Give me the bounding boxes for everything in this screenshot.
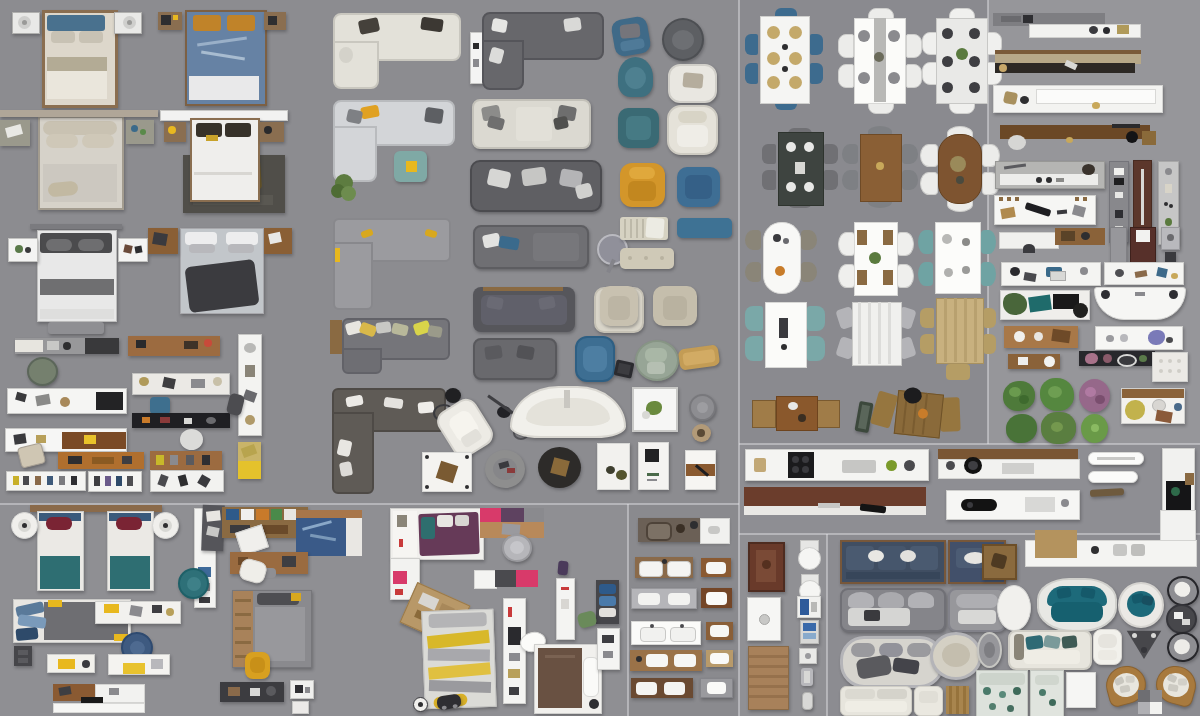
headboard-shelf-gray[interactable] [0, 110, 158, 117]
sofa-gray-teal-pillow-part-1 [482, 232, 501, 248]
art-frame-plant[interactable] [632, 387, 678, 432]
single-bed-teal-1[interactable] [37, 511, 84, 591]
console-wood-white[interactable] [997, 228, 1105, 253]
armchair-mustard[interactable] [620, 163, 665, 207]
nightstand-gray-right[interactable] [126, 120, 154, 144]
grab-handle[interactable] [802, 692, 813, 710]
armchair-mustard-part-2 [628, 181, 656, 201]
console-white-clips[interactable] [1001, 262, 1101, 286]
rug-marble-dots[interactable] [597, 443, 630, 490]
armchair-tufted-1-part-1 [608, 296, 630, 320]
armchair-blue-square[interactable] [677, 167, 720, 207]
nightstand-speaker-left[interactable] [12, 12, 40, 34]
tray-round-tan[interactable] [692, 424, 711, 442]
tall-shelf-white[interactable] [238, 334, 262, 436]
tray-round-tan-part-1 [697, 429, 705, 437]
tv-console-wood-top-part-3 [946, 461, 955, 470]
nightstand-speaker-left-part-1 [18, 16, 31, 29]
bed-purple-wardrobe-part-3 [399, 539, 403, 547]
kitchen-counter-brown[interactable] [744, 487, 926, 515]
double-bed-blue-pillows[interactable] [42, 10, 118, 108]
color-swatch-triple[interactable] [474, 570, 538, 587]
swatch-grid-gray-part-3 [1138, 702, 1150, 714]
nightstand-walnut-left[interactable] [148, 228, 178, 254]
kitchen-counter-stove[interactable] [745, 449, 929, 481]
console-white-curved[interactable] [1094, 287, 1186, 320]
dining-set-placemats-part-5 [854, 222, 898, 296]
shoe-rack-1-part-6 [71, 476, 77, 485]
bench-striped-blanket-part-1 [624, 219, 626, 238]
console-white-clips-part-5 [1080, 267, 1088, 275]
rug-round-spiral-1[interactable] [11, 512, 38, 539]
vanity-granite-double[interactable] [638, 518, 728, 542]
desk-pink-purple[interactable] [480, 508, 544, 538]
wardrobe-tall-narrow-part-2 [561, 599, 569, 609]
chair-round-sage[interactable] [635, 340, 679, 381]
sofa-gray-single-part-2 [958, 610, 996, 624]
shoe-rack-2-part-4 [127, 476, 133, 486]
armchair-rattan-white[interactable] [667, 105, 718, 155]
nightstand-dark-knobs[interactable] [14, 646, 32, 666]
tv-console-wood-top-part-1 [938, 449, 1078, 460]
tv-console-soundbar-part-2 [967, 502, 973, 508]
sectional-sofa-darkgray[interactable] [482, 12, 600, 86]
double-bed-blue-duvet[interactable] [185, 10, 267, 106]
dresser-striped[interactable] [132, 373, 230, 395]
desk-white-wood-part-1 [62, 432, 126, 449]
console-white-curved-part-1 [1101, 290, 1110, 299]
nightstand-wood-b[interactable] [260, 122, 284, 142]
plant-shrub-1[interactable] [1003, 381, 1035, 411]
desk-blue-sketch-part-5 [346, 518, 362, 556]
panel-wood-slats[interactable] [946, 686, 969, 714]
media-bench-brown-part-6 [109, 688, 119, 695]
sofa-navy-wood-frame-part-5 [900, 550, 916, 562]
sofa-floral-pattern-1-part-5 [989, 703, 996, 710]
sideboard-two-tone[interactable] [15, 338, 119, 354]
vanity-double-wood-dark[interactable] [630, 650, 702, 671]
swatch-grid-gray[interactable] [1138, 690, 1162, 714]
sofa-gray-white-seat[interactable] [840, 588, 946, 632]
double-bed-striped-duvet-part-3 [78, 239, 104, 251]
ottoman-tufted-beige[interactable] [620, 248, 674, 269]
double-bed-beige-pillows[interactable] [38, 116, 124, 210]
shower-head-unit[interactable] [799, 648, 817, 664]
dining-set-teal-chairs-part-8 [944, 268, 953, 277]
armchair-tufted-2[interactable] [653, 286, 697, 326]
sectional-sofa-cream[interactable] [333, 13, 457, 85]
coffee-table-wood-square[interactable] [982, 544, 1017, 580]
cabinet-mahogany-small[interactable] [1130, 227, 1156, 265]
bed-chevron-pattern[interactable] [421, 609, 496, 709]
double-bed-blue-pillows-part-2 [51, 31, 75, 43]
ac-unit-short[interactable] [1088, 471, 1138, 483]
bed-end-bench[interactable] [48, 322, 104, 334]
pouf-blue-square[interactable] [150, 397, 170, 414]
nightstand-dark-left[interactable] [158, 12, 182, 30]
double-bed-dark-pillows[interactable] [190, 118, 260, 202]
armchair-tufted-1[interactable] [600, 286, 638, 326]
chair-black-frame-1-part-1 [1173, 580, 1192, 598]
rug-oval-white[interactable] [997, 585, 1031, 631]
bed-purple-wardrobe[interactable] [390, 508, 484, 560]
color-swatch-triple-part-1 [474, 570, 497, 589]
dining-set-teal-wide-part-2 [745, 336, 763, 361]
kitchen-counter-stove-part-4 [802, 456, 809, 463]
vanity-single-wood-part-1 [706, 562, 726, 574]
console-walnut-gray[interactable] [994, 123, 1162, 150]
sofa-chaise-pillows-part-4 [345, 320, 364, 336]
chair-round-sage-part-2 [647, 362, 665, 374]
rug-round-black-chess[interactable] [538, 447, 581, 488]
chair-teal-round-big[interactable] [1118, 582, 1164, 628]
sofa-chesterfield-wood-trim[interactable] [473, 287, 575, 332]
chair-yellow-desk[interactable] [245, 652, 270, 679]
wall-shelf-light-part-2 [1165, 184, 1172, 193]
console-white-dots[interactable] [1104, 262, 1184, 285]
fan-chair-wood-1-part-1 [1110, 670, 1141, 700]
dining-set-teal-chairs-part-1 [918, 230, 933, 254]
shoe-rack-1-part-3 [35, 476, 41, 485]
vanity-single-beige[interactable] [706, 650, 733, 667]
cart-towels-blue-part-2 [803, 633, 816, 639]
armchair-cream-pillow-part-1 [682, 72, 703, 89]
nightstand-walnut-right[interactable] [264, 228, 292, 254]
shoe-bench-brown-part-2 [170, 455, 178, 465]
dining-set-gray-white[interactable] [922, 8, 1000, 112]
sofa-chaise-pillows-part-2 [342, 318, 450, 360]
art-frame-plant-part-2 [642, 411, 650, 419]
swatch-grid-gray-part-4 [1150, 702, 1162, 714]
vanity-single-gray[interactable] [700, 678, 733, 698]
vanity-double-wood[interactable] [635, 557, 693, 578]
sofa-metal-frame-oval[interactable] [840, 636, 944, 688]
sofa-chesterfield-gray[interactable] [470, 160, 602, 212]
shoe-rack-3[interactable] [150, 470, 224, 492]
bench-striped-blanket-part-3 [636, 219, 638, 238]
sofa-cream-gray-pillows[interactable] [472, 99, 591, 149]
dining-set-white-6-part-5 [906, 34, 922, 58]
shelf-pillows-blue-part-1 [599, 584, 616, 594]
double-bed-charcoal-throw-part-1 [185, 232, 217, 245]
bench-striped-blanket[interactable] [620, 217, 668, 240]
tv-console-wood-top[interactable] [938, 449, 1078, 477]
armchair-white-tall[interactable] [1093, 629, 1122, 665]
desk-orange-part-1 [68, 456, 82, 464]
rug-round-spiral-2[interactable] [152, 512, 179, 539]
media-bench-brown[interactable] [53, 684, 143, 711]
potted-plant[interactable] [331, 174, 356, 203]
kitchen-island-L[interactable] [1025, 510, 1195, 565]
shoe-rack-1-part-4 [47, 476, 53, 485]
dresser-striped-part-1 [139, 377, 149, 386]
desk-yellow-wide[interactable] [108, 654, 170, 675]
person-figure-small[interactable] [557, 561, 568, 576]
single-bed-teal-2[interactable] [107, 511, 154, 591]
console-walnut-gray-part-1 [1000, 125, 1150, 139]
towel-stand-small[interactable] [801, 668, 813, 686]
sideboard-white-black-part-1 [96, 392, 123, 410]
dining-set-white-6[interactable] [838, 8, 920, 112]
vanity-double-wood-dark-part-2 [674, 654, 696, 667]
rug-white-blank[interactable] [1066, 672, 1096, 708]
coffee-table-wood-square-part-1 [990, 552, 1007, 569]
shower-deck-wood[interactable] [748, 646, 789, 710]
nightstand-speaker-right-part-2 [127, 20, 132, 25]
armchair-cream-pillow[interactable] [668, 64, 717, 103]
table-rustic-benches[interactable] [872, 384, 963, 443]
bed-plank-side[interactable] [232, 590, 312, 668]
sofa-floral-pattern-2[interactable] [1030, 670, 1064, 716]
headboard-tufted-white[interactable] [1152, 352, 1188, 382]
dresser-striped-part-2 [162, 377, 176, 389]
dining-set-slat-wood[interactable] [920, 298, 996, 380]
tv-console-gray-white[interactable] [993, 13, 1139, 36]
plant-shrub-3[interactable] [1006, 414, 1037, 443]
rug-chessboard-white[interactable] [422, 452, 472, 492]
vanity-double-gray[interactable] [631, 588, 697, 609]
armchair-rattan-white-part-2 [677, 125, 708, 147]
dining-set-oval-wood[interactable] [920, 126, 998, 210]
console-white-dots-part-1 [1115, 269, 1124, 277]
double-bed-charcoal-throw[interactable] [180, 228, 264, 314]
stool-round-gray[interactable] [689, 394, 716, 421]
sectional-sofa-cream-part-4 [420, 17, 444, 33]
double-bed-charcoal-throw-part-3 [189, 244, 215, 253]
shoe-rack-1-part-2 [23, 476, 29, 485]
console-gray-ledge-part-4 [1036, 177, 1042, 183]
plant-shrub-4[interactable] [1041, 412, 1076, 444]
desk-yellow-small[interactable] [47, 654, 95, 673]
sideboard-two-tone-part-3 [47, 341, 59, 350]
chair-swivel-gray[interactable] [662, 18, 704, 61]
sectional-sofa-lightgray[interactable] [333, 100, 451, 178]
box-gray-small[interactable] [1161, 227, 1180, 250]
sofa-serpentine-white-part-2 [564, 390, 570, 408]
sofa-navy-wood-frame-part-1 [846, 546, 874, 570]
rug-round-white-small[interactable] [180, 429, 203, 450]
dining-set-oval-white[interactable] [745, 222, 817, 292]
sofa-cream-teal-pillows[interactable] [1008, 630, 1092, 670]
sideboard-white-black[interactable] [7, 388, 127, 414]
desk-orange-part-2 [92, 457, 114, 464]
plant-flower-purple[interactable] [1079, 379, 1110, 412]
chair-teal-round-small[interactable] [178, 568, 209, 599]
plant-shrub-4-part-1 [1051, 422, 1063, 432]
frame-small-2[interactable] [292, 701, 309, 714]
desk-vanity-flowers[interactable] [1121, 388, 1185, 424]
vanity-double-espresso[interactable] [631, 678, 693, 698]
rug-round-gray[interactable] [485, 450, 525, 488]
desk-wood-angled-part-1 [418, 592, 439, 610]
sofa-teal-curved[interactable] [1037, 578, 1117, 632]
sofa-chaise-pillows[interactable] [330, 318, 446, 370]
nightstand-dark-left-part-2 [173, 15, 178, 20]
sofa-chesterfield-wood-trim-part-1 [483, 287, 563, 291]
double-bed-blue-duvet-part-2 [227, 15, 255, 31]
armchair-teal-curved[interactable] [618, 57, 653, 97]
desk-orange[interactable] [58, 452, 144, 469]
dining-set-blue-chairs[interactable] [745, 8, 823, 110]
armchair-teal-square[interactable] [618, 108, 659, 148]
vanity-double-white[interactable] [631, 621, 701, 645]
console-walnut-gray-part-5 [1142, 131, 1156, 145]
sofa-floral-pattern-1[interactable] [976, 670, 1028, 716]
nightstand-gray-left[interactable] [0, 120, 30, 146]
dining-set-placemats-part-4 [897, 264, 914, 288]
shoe-rack-2[interactable] [88, 471, 142, 492]
shelf-wood-tray[interactable] [1004, 326, 1078, 348]
plant-shrub-5[interactable] [1081, 414, 1108, 443]
pouf-teal[interactable] [394, 151, 427, 182]
double-bed-striped-duvet[interactable] [37, 230, 117, 322]
ottoman-round-green[interactable] [27, 357, 58, 386]
dining-set-gray-white-part-7 [936, 18, 988, 104]
armchair-blue-accent[interactable] [610, 15, 652, 58]
console-white-shelf[interactable] [993, 85, 1163, 113]
plant-flower-purple-part-2 [1095, 395, 1105, 404]
desk-blue-sketch-part-4 [310, 534, 336, 541]
desk-charcoal[interactable] [220, 682, 284, 702]
media-console-black[interactable] [132, 413, 230, 428]
nightstand-wood-a[interactable] [164, 122, 186, 142]
console-white-rail[interactable] [994, 195, 1096, 225]
rug-round-spiral-1-part-1 [18, 519, 31, 532]
kitchen-counter-brown-part-2 [744, 506, 926, 515]
nightstand-white-left[interactable] [8, 238, 38, 262]
vanity-granite-double-part-5 [708, 526, 720, 534]
dining-set-oval-white-part-6 [773, 234, 781, 242]
sofa-gray-loveseat[interactable] [473, 338, 557, 380]
frame-small-1[interactable] [290, 680, 314, 699]
console-art-moss[interactable] [1000, 290, 1090, 320]
cabinet-yellow[interactable] [238, 442, 261, 479]
shoe-rack-1[interactable] [6, 471, 86, 491]
cabinet-yellow-part-2 [241, 444, 258, 458]
desk-white-wood-part-2 [13, 433, 26, 445]
desk-yellow-small-part-1 [58, 659, 75, 669]
chair-outdoor-cream[interactable] [914, 686, 943, 716]
bed-horizontal-gray-part-5 [48, 600, 62, 607]
sideboard-wood[interactable] [128, 336, 220, 356]
dining-set-placemats[interactable] [838, 222, 912, 294]
cart-towels-blue[interactable] [800, 620, 819, 644]
plant-shrub-2[interactable] [1040, 378, 1074, 411]
floating-shelf-wood[interactable] [1008, 354, 1060, 369]
nightstand-white-left-part-2 [25, 247, 31, 253]
dining-set-striped-table-part-1 [835, 306, 856, 330]
rug-brown-band[interactable] [685, 450, 716, 490]
dining-set-oval-wood-part-8 [950, 156, 966, 172]
basket-lattice-oval[interactable] [977, 632, 1002, 668]
dining-set-dark-green[interactable] [762, 128, 838, 208]
desk-white-long[interactable] [95, 601, 181, 624]
bench-blue[interactable] [677, 218, 732, 238]
sofa-cream-teal-pillows-part-1 [1014, 634, 1024, 660]
desk-white-long-part-4 [166, 608, 174, 616]
chair-metal-frame-round[interactable] [930, 632, 982, 680]
sideboard-white-black-part-4 [60, 397, 70, 407]
table-mesh-chairs-part-3 [776, 396, 818, 431]
nightstand-dark-right[interactable] [264, 12, 286, 30]
vanity-single-wood[interactable] [701, 558, 731, 577]
floating-shelf-black[interactable] [1079, 351, 1155, 366]
headboard-bar[interactable] [30, 224, 122, 229]
vanity-granite-double-part-2 [676, 524, 685, 533]
nightstand-white-right[interactable] [118, 238, 148, 262]
side-table-round-dark[interactable] [1166, 604, 1197, 634]
soccer-ball[interactable] [413, 697, 428, 712]
sideboard-tan-black[interactable] [995, 50, 1141, 73]
dining-set-wood-gray-part-7 [860, 134, 902, 202]
dining-set-teal-wide-part-6 [779, 318, 788, 338]
bed-chevron-pattern-part-1 [428, 612, 486, 628]
dining-set-oval-wood-part-7 [938, 134, 982, 204]
vanity-single-wood-2[interactable] [701, 588, 732, 608]
chair-gray-round-small[interactable] [502, 534, 532, 562]
sofa-chaise-pillows-part-9 [427, 325, 443, 338]
dining-set-teal-wide[interactable] [745, 302, 825, 366]
sofa-outdoor-cream[interactable] [840, 686, 912, 716]
washstand-blue[interactable] [797, 596, 821, 618]
shower-base-brown[interactable] [748, 542, 785, 592]
dining-set-blue-chairs-part-15 [782, 66, 788, 72]
desk-blue-sketch[interactable] [296, 510, 362, 556]
single-bed-brown-part-2 [545, 655, 575, 658]
console-white-shelf-part-3 [1020, 96, 1029, 104]
sectional-sofa-gray-yellow[interactable] [333, 218, 447, 306]
table-mesh-chairs[interactable] [752, 396, 838, 429]
desk-vertical-white[interactable] [503, 598, 526, 704]
toilet-top-1[interactable] [798, 540, 819, 568]
shelf-pillows-blue[interactable] [596, 580, 619, 624]
sofa-outdoor-cream-part-2 [877, 689, 907, 699]
cart-towels-blue-part-1 [803, 623, 816, 631]
vanity-granite-double-part-4 [700, 518, 730, 544]
nightstand-speaker-right[interactable] [114, 12, 142, 34]
ottoman-tufted-beige-part-3 [660, 256, 664, 260]
armchair-blue-highback[interactable] [575, 336, 615, 382]
sofa-navy-wood-frame[interactable] [840, 540, 946, 584]
shoe-rack-3-part-1 [157, 474, 168, 487]
kitchen-counter-stove-part-1 [754, 458, 766, 472]
console-white-flower[interactable] [1095, 326, 1183, 350]
dining-set-striped-table[interactable] [838, 300, 914, 366]
double-bed-beige-pillows-part-4 [43, 164, 117, 202]
desk-white-marks[interactable] [597, 628, 620, 670]
rug-marble-frame[interactable] [638, 442, 669, 490]
dining-set-teal-chairs[interactable] [918, 222, 996, 292]
shoe-bench-brown[interactable] [150, 451, 222, 470]
book-stack-dark[interactable] [614, 359, 635, 378]
console-gray-ledge-part-2 [1004, 163, 1026, 169]
ac-unit-long[interactable] [1088, 452, 1144, 465]
tv-console-gray-white-part-2 [1029, 24, 1141, 38]
shower-base-white[interactable] [747, 597, 781, 641]
sectional-sofa-darkgray-part-3 [491, 18, 508, 33]
single-bed-brown[interactable] [534, 644, 602, 714]
console-gray-ledge[interactable] [995, 161, 1105, 189]
dining-set-blue-chairs-part-10 [767, 52, 780, 65]
vanity-single-tan[interactable] [706, 622, 733, 640]
sideboard-tan-black-part-1 [995, 50, 1141, 55]
dining-set-wood-gray-part-6 [902, 170, 918, 190]
wardrobe-tall-narrow[interactable] [556, 578, 575, 640]
dining-set-wood-gray[interactable] [842, 126, 918, 208]
vanity-single-tan-part-1 [710, 625, 729, 637]
sofa-gray-teal-pillow[interactable] [473, 225, 589, 269]
wall-shelf-light-part-3 [1164, 202, 1168, 206]
